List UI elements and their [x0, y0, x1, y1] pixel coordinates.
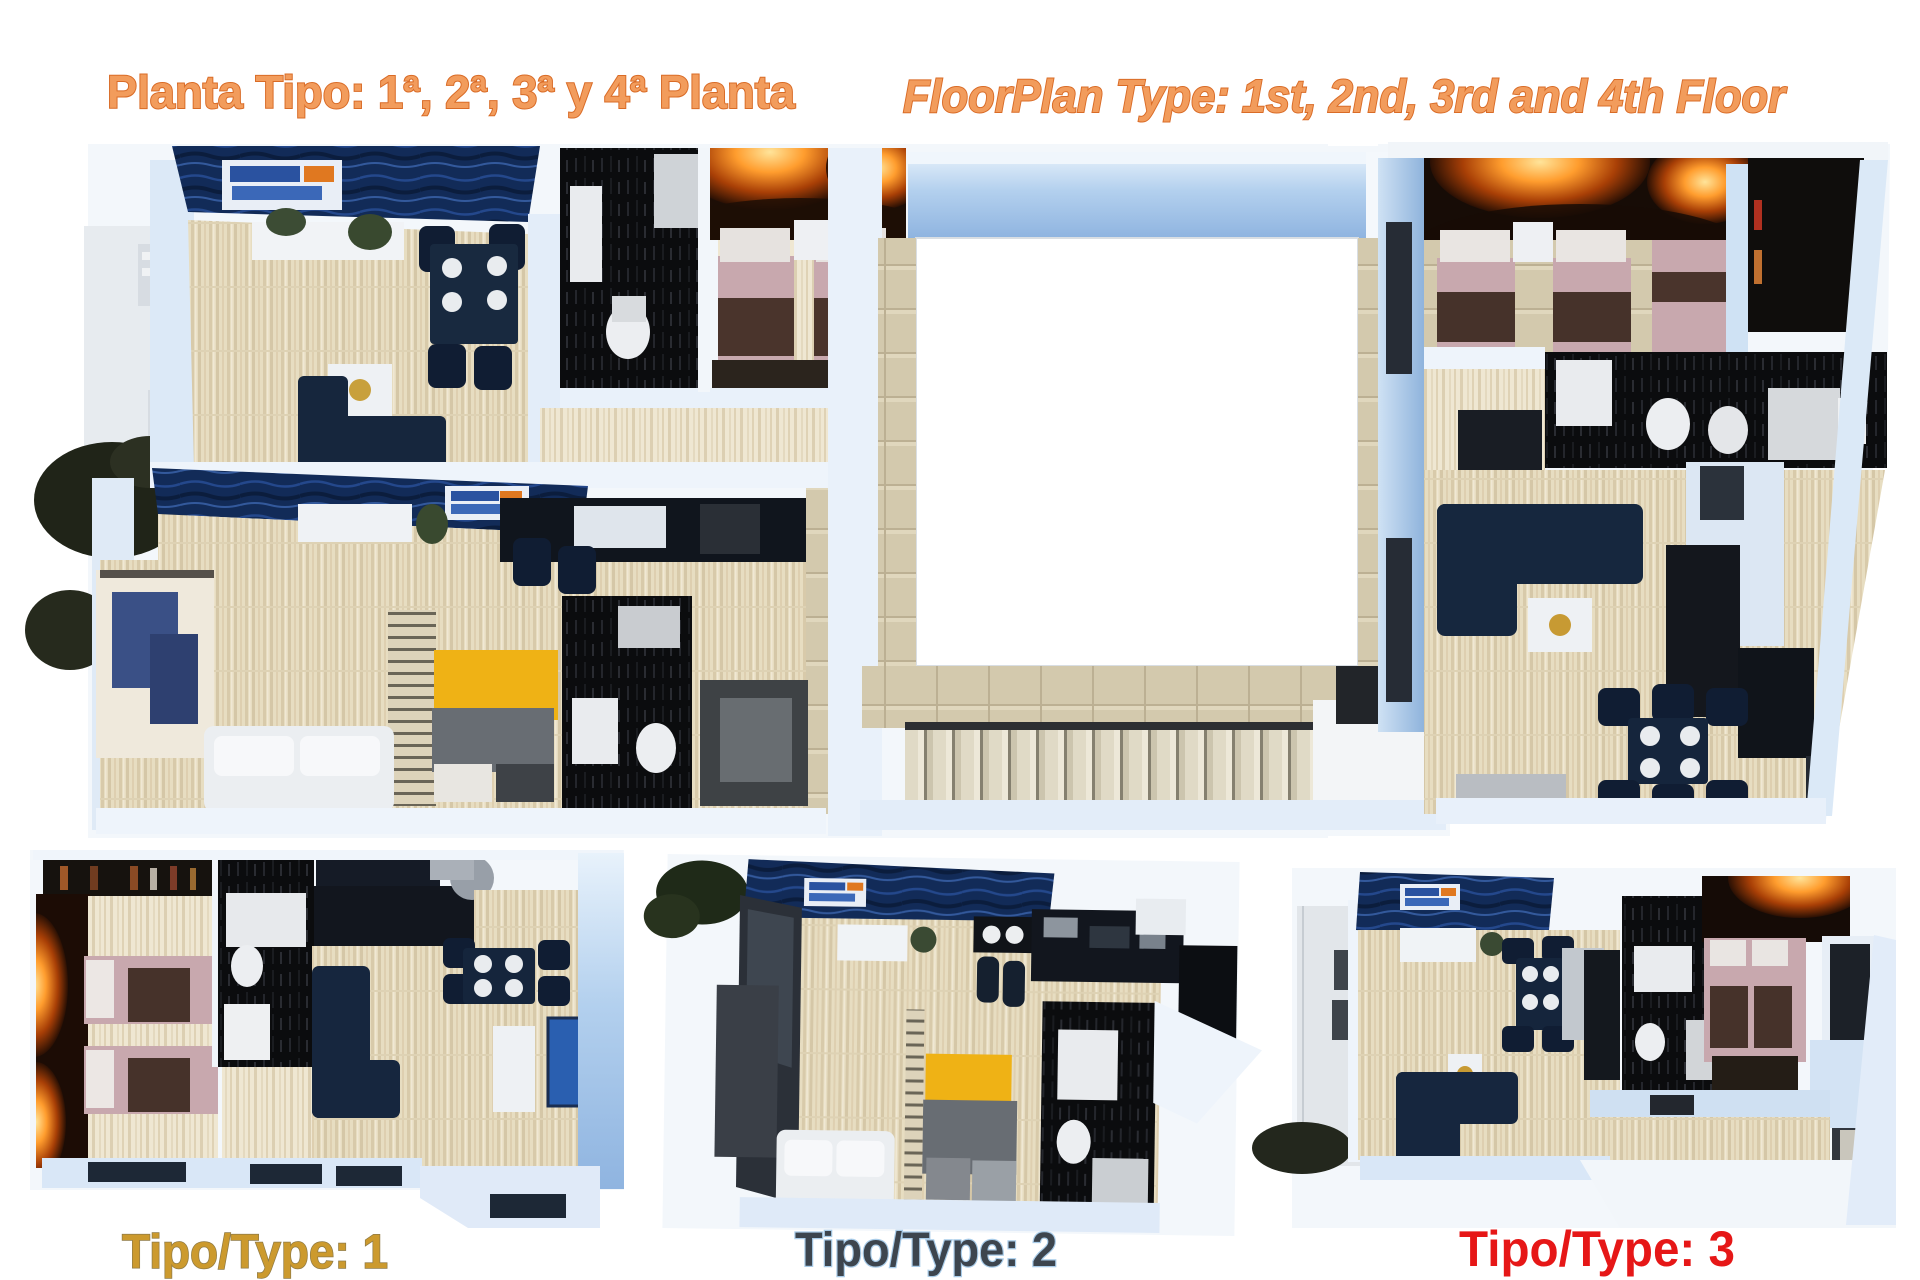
svg-text:Planta Tipo: 1ª, 2ª, 3ª y 4ª P: Planta Tipo: 1ª, 2ª, 3ª y 4ª Planta	[107, 66, 795, 118]
svg-text:Tipo/Type: 3: Tipo/Type: 3	[1459, 1221, 1735, 1277]
svg-text:Tipo/Type: 1: Tipo/Type: 1	[122, 1226, 388, 1279]
svg-text:Tipo/Type: 2: Tipo/Type: 2	[795, 1224, 1057, 1277]
svg-text:FloorPlan Type: 1st, 2nd, 3rd: FloorPlan Type: 1st, 2nd, 3rd and 4th Fl…	[903, 70, 1787, 122]
